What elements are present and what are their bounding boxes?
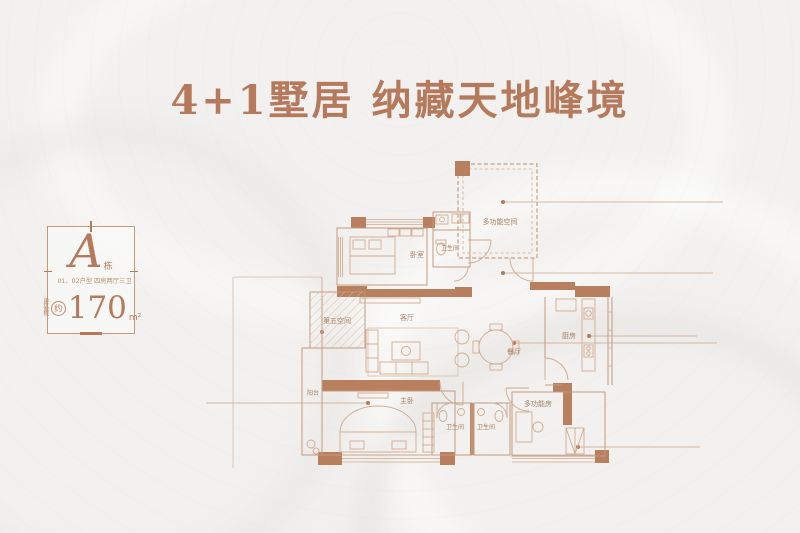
room-label-balcony: 阳台 [307,389,319,397]
page-title: 4+1墅居 纳藏天地峰境 [0,68,800,126]
badge-area-label-line2: 面积 [43,308,48,316]
room-label-bath-top: 卫生间 [441,244,459,252]
badge-area-row: 建筑 面积 约 170 m² [48,289,134,327]
room-label-multi-room: 多功能房 [524,399,552,408]
badge-block-suffix: 栋 [104,262,113,272]
room-label-bath-2: 卫生间 [477,423,495,431]
exterior-extension-outline [233,277,322,468]
badge-approx-circle: 约 [51,301,66,316]
room-label-multi-space: 多功能空间 [483,217,518,226]
room-labels: 多功能空间 卧室 卫生间 客厅 第五空间 餐厅 厨房 阳台 主卧 卫生间 卫生间… [307,217,576,431]
unit-badge: A栋 01、02户型 四房两厅三卫 建筑 面积 约 170 m² [47,226,135,334]
room-label-living-room: 客厅 [400,313,414,322]
badge-letter-row: A栋 [48,225,134,277]
room-label-master: 主卧 [400,396,414,405]
promo-page: { "page": { "title_line": "4+1墅居 纳藏天地峰境"… [0,0,800,533]
badge-area-unit: m² [129,313,141,323]
room-label-kitchen: 厨房 [562,331,576,340]
wall-pillar [455,161,470,176]
floor-plan: 多功能空间 卧室 卫生间 客厅 第五空间 餐厅 厨房 阳台 主卧 卫生间 卫生间… [200,148,740,483]
badge-area-value: 170 [68,293,127,323]
badge-area-label: 建筑 面积 [43,300,48,316]
room-label-bedroom: 卧室 [410,250,424,259]
badge-unit-info: 01、02户型 四房两厅三卫 [57,277,124,286]
room-label-dining-room: 餐厅 [507,347,521,356]
floor-plan-svg: 多功能空间 卧室 卫生间 客厅 第五空间 餐厅 厨房 阳台 主卧 卫生间 卫生间… [200,148,740,483]
room-label-fifth-space: 第五空间 [323,316,351,325]
room-label-bath-1: 卫生间 [446,423,464,431]
badge-tick-bottom [80,332,102,335]
badge-block-letter: A [69,224,102,278]
